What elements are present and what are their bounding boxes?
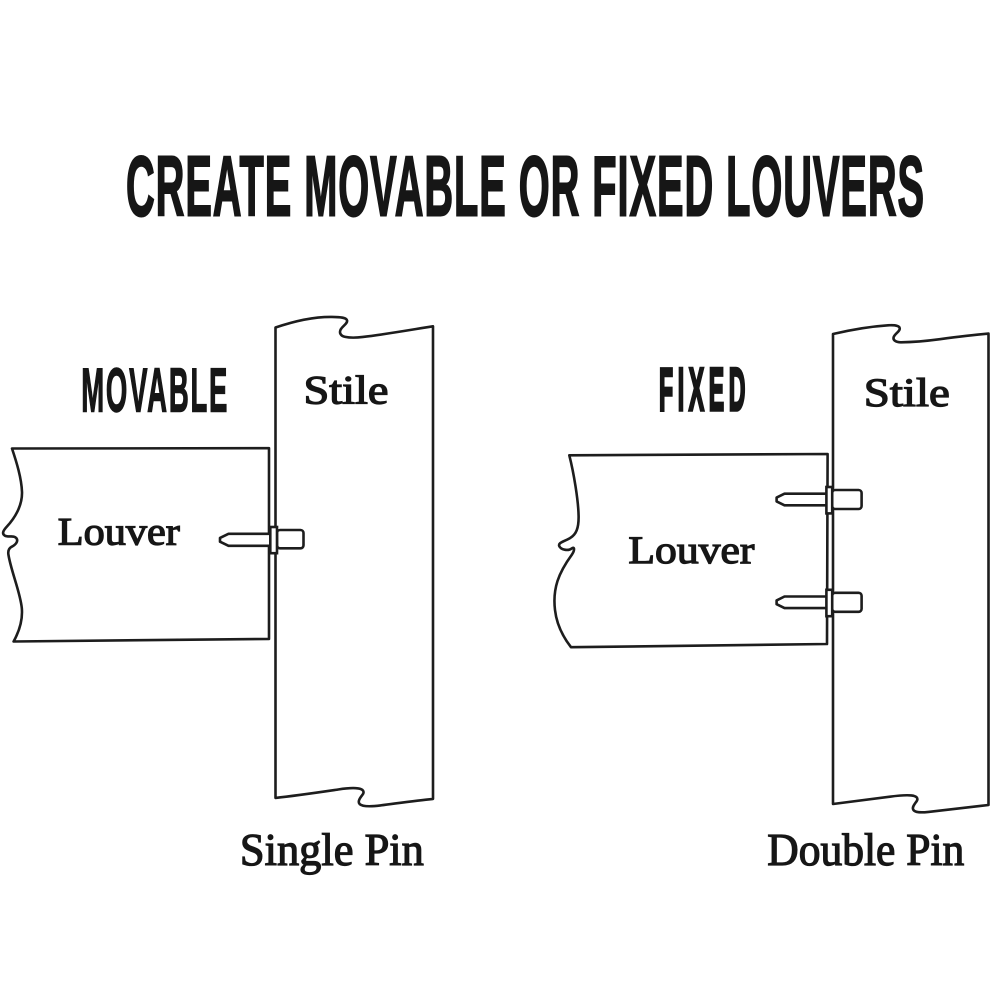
- svg-text:FIXED: FIXED: [659, 356, 750, 423]
- svg-text:Single Pin: Single Pin: [240, 825, 424, 875]
- svg-text:Stile: Stile: [304, 367, 389, 412]
- svg-text:CREATE MOVABLE OR FIXED LOUVER: CREATE MOVABLE OR FIXED LOUVERS: [126, 140, 925, 235]
- svg-text:Double Pin: Double Pin: [767, 825, 964, 875]
- svg-text:Louver: Louver: [628, 529, 754, 572]
- svg-text:Louver: Louver: [58, 510, 180, 553]
- svg-text:Stile: Stile: [864, 370, 950, 415]
- svg-text:MOVABLE: MOVABLE: [81, 357, 229, 426]
